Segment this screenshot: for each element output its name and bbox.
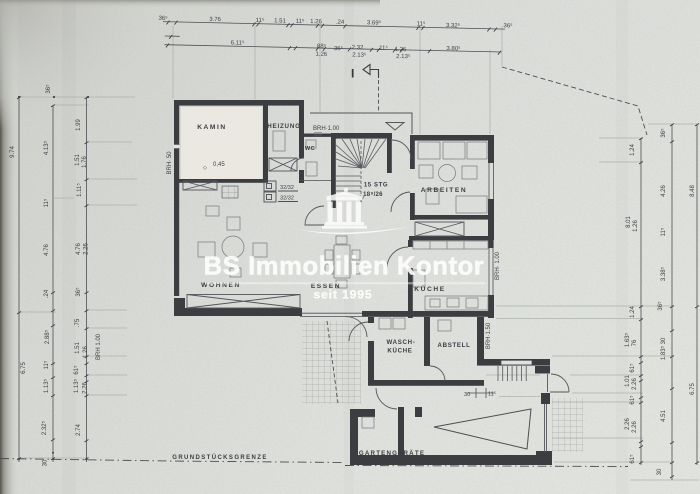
svg-text:61⁵: 61⁵ bbox=[629, 454, 636, 464]
svg-text:11⁵: 11⁵ bbox=[43, 360, 50, 369]
svg-text:HEIZUNG: HEIZUNG bbox=[267, 123, 300, 130]
svg-text:KÜCHE: KÜCHE bbox=[387, 348, 412, 355]
svg-text:32/32: 32/32 bbox=[280, 185, 294, 191]
svg-text:11⁵: 11⁵ bbox=[417, 20, 426, 27]
svg-text:3.69⁵: 3.69⁵ bbox=[367, 19, 382, 26]
svg-text:2.32: 2.32 bbox=[352, 45, 364, 51]
svg-text:2.26: 2.26 bbox=[83, 382, 89, 394]
svg-text:seit 1995: seit 1995 bbox=[313, 288, 372, 302]
svg-text:1.99: 1.99 bbox=[76, 119, 82, 131]
svg-text:36⁵: 36⁵ bbox=[657, 301, 664, 311]
svg-text:1.26: 1.26 bbox=[310, 19, 322, 25]
svg-text:11⁵: 11⁵ bbox=[256, 17, 265, 24]
svg-text:11⁵: 11⁵ bbox=[43, 198, 50, 207]
svg-text:11⁵: 11⁵ bbox=[488, 391, 496, 398]
svg-text:2.26: 2.26 bbox=[632, 421, 638, 433]
svg-text:4.26: 4.26 bbox=[661, 185, 667, 197]
svg-text:30: 30 bbox=[43, 459, 49, 466]
svg-text:61⁵: 61⁵ bbox=[73, 365, 80, 375]
svg-text:1.76: 1.76 bbox=[82, 156, 88, 168]
svg-text:11⁵: 11⁵ bbox=[379, 45, 388, 52]
svg-text:BS Immobilien Kontor: BS Immobilien Kontor bbox=[204, 253, 485, 281]
svg-text:2.13⁵: 2.13⁵ bbox=[352, 51, 367, 58]
svg-text:36⁵: 36⁵ bbox=[334, 45, 344, 52]
svg-text:6.11⁵: 6.11⁵ bbox=[231, 39, 245, 46]
svg-text:30: 30 bbox=[661, 337, 667, 344]
svg-text:61⁵: 61⁵ bbox=[629, 363, 636, 373]
svg-text:3.32⁵: 3.32⁵ bbox=[446, 22, 461, 29]
svg-text:BRH· 50: BRH· 50 bbox=[167, 151, 173, 175]
svg-text:BRH· 1.00: BRH· 1.00 bbox=[495, 251, 501, 280]
svg-text:4.76: 4.76 bbox=[44, 244, 50, 256]
svg-text:32/32: 32/32 bbox=[280, 196, 294, 202]
svg-text:4.76: 4.76 bbox=[76, 243, 82, 255]
svg-text:36⁵: 36⁵ bbox=[660, 128, 667, 138]
svg-text:4.13⁵: 4.13⁵ bbox=[43, 140, 50, 155]
svg-text:.24: .24 bbox=[44, 289, 50, 298]
svg-text:6.75: 6.75 bbox=[690, 383, 696, 395]
svg-text:BRH·1.50: BRH·1.50 bbox=[486, 322, 492, 349]
svg-text:3.38⁵: 3.38⁵ bbox=[660, 266, 667, 281]
svg-text:18⁸/26: 18⁸/26 bbox=[363, 192, 383, 198]
svg-text:I: I bbox=[351, 67, 354, 81]
svg-text:.75: .75 bbox=[75, 318, 81, 327]
svg-text:3.80⁵: 3.80⁵ bbox=[446, 45, 461, 52]
svg-text:36⁵: 36⁵ bbox=[75, 287, 82, 297]
svg-text:WC: WC bbox=[305, 146, 315, 152]
svg-text:1.24: 1.24 bbox=[630, 306, 636, 318]
svg-text:8.01: 8.01 bbox=[626, 216, 632, 228]
svg-text:BRH 1.00: BRH 1.00 bbox=[96, 333, 102, 360]
svg-text:ABSTELL: ABSTELL bbox=[438, 342, 471, 349]
svg-text:6.75: 6.75 bbox=[21, 362, 27, 374]
svg-text:2.13⁵: 2.13⁵ bbox=[396, 53, 411, 60]
svg-text:2.26: 2.26 bbox=[632, 378, 638, 390]
svg-text:88⁵: 88⁵ bbox=[317, 43, 327, 50]
svg-text:3.76: 3.76 bbox=[209, 17, 221, 23]
svg-text:1.26: 1.26 bbox=[83, 346, 89, 358]
svg-text:2.26: 2.26 bbox=[625, 418, 631, 430]
svg-text:8.48: 8.48 bbox=[690, 185, 696, 197]
svg-text:15 STG: 15 STG bbox=[364, 183, 388, 189]
svg-text:36⁵: 36⁵ bbox=[45, 84, 52, 94]
svg-text:30: 30 bbox=[657, 468, 663, 475]
svg-text:WASCH-: WASCH- bbox=[387, 339, 416, 346]
svg-text:.24: .24 bbox=[336, 20, 345, 26]
svg-text:1.26: 1.26 bbox=[633, 220, 639, 232]
svg-text:36⁵: 36⁵ bbox=[158, 15, 168, 22]
svg-text:KAMIN: KAMIN bbox=[197, 124, 227, 131]
svg-text:11⁵: 11⁵ bbox=[296, 18, 305, 25]
svg-text:1.13⁵: 1.13⁵ bbox=[43, 378, 50, 393]
svg-text:30: 30 bbox=[464, 392, 470, 398]
svg-text:◇: ◇ bbox=[203, 165, 207, 171]
svg-text:1.11⁵: 1.11⁵ bbox=[76, 183, 83, 197]
svg-text:2.88⁵: 2.88⁵ bbox=[44, 329, 51, 344]
svg-text:1.13⁵: 1.13⁵ bbox=[73, 378, 80, 393]
svg-text:4.51: 4.51 bbox=[661, 410, 667, 422]
svg-text:2.32⁵: 2.32⁵ bbox=[41, 420, 48, 435]
svg-text:GARTENGERÄTE: GARTENGERÄTE bbox=[359, 450, 425, 457]
svg-text:GRUNDSTÜCKSGRENZE: GRUNDSTÜCKSGRENZE bbox=[172, 454, 267, 461]
svg-text:61⁵: 61⁵ bbox=[629, 395, 636, 405]
svg-text:2.26: 2.26 bbox=[84, 243, 90, 255]
svg-text:2.74: 2.74 bbox=[76, 424, 82, 436]
svg-text:1.51: 1.51 bbox=[75, 154, 81, 166]
svg-text:9.74: 9.74 bbox=[10, 146, 16, 158]
svg-text:76: 76 bbox=[632, 339, 638, 346]
svg-text:KÜCHE: KÜCHE bbox=[414, 284, 445, 293]
svg-text:1.51: 1.51 bbox=[274, 18, 286, 24]
svg-text:BRH·1.00: BRH·1.00 bbox=[313, 126, 340, 132]
svg-text:11⁵: 11⁵ bbox=[660, 227, 667, 236]
svg-text:36⁵: 36⁵ bbox=[503, 22, 513, 29]
svg-text:1.01: 1.01 bbox=[625, 375, 631, 387]
svg-text:1.24: 1.24 bbox=[630, 144, 636, 156]
svg-text:1.83⁵: 1.83⁵ bbox=[660, 345, 667, 360]
svg-text:ARBEITEN: ARBEITEN bbox=[421, 187, 468, 194]
svg-text:1.63⁵: 1.63⁵ bbox=[624, 332, 631, 347]
svg-text:1.26: 1.26 bbox=[315, 52, 327, 58]
svg-text:1.51: 1.51 bbox=[75, 342, 81, 354]
svg-text:0,45: 0,45 bbox=[213, 162, 225, 168]
svg-text:1.26: 1.26 bbox=[395, 47, 407, 53]
